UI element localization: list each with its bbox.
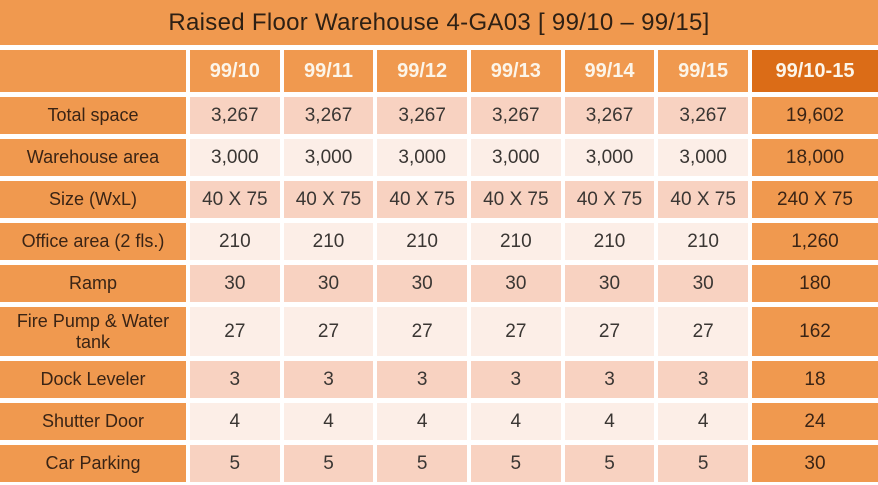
table-cell: 3,267 xyxy=(471,97,561,134)
table-cell: 5 xyxy=(658,445,748,482)
table-cell: 3 xyxy=(565,361,655,398)
row-label: Ramp xyxy=(0,265,186,302)
table-cell: 3 xyxy=(471,361,561,398)
table-cell: 5 xyxy=(284,445,374,482)
warehouse-table-page: Raised Floor Warehouse 4-GA03 [ 99/10 – … xyxy=(0,0,878,485)
row-label: Shutter Door xyxy=(0,403,186,440)
header-col-99-12: 99/12 xyxy=(377,50,467,92)
table-cell: 30 xyxy=(565,265,655,302)
table-cell: 40 X 75 xyxy=(658,181,748,218)
table-cell: 40 X 75 xyxy=(565,181,655,218)
table-cell: 5 xyxy=(190,445,280,482)
table-cell: 40 X 75 xyxy=(284,181,374,218)
row-total-cell: 162 xyxy=(752,307,878,356)
header-col-99-10: 99/10 xyxy=(190,50,280,92)
table-cell: 3 xyxy=(190,361,280,398)
row-total-cell: 18,000 xyxy=(752,139,878,176)
table-cell: 210 xyxy=(190,223,280,260)
header-col-99-13: 99/13 xyxy=(471,50,561,92)
table-cell: 27 xyxy=(190,307,280,356)
row-total-cell: 24 xyxy=(752,403,878,440)
row-label: Warehouse area xyxy=(0,139,186,176)
table-cell: 27 xyxy=(658,307,748,356)
table-cell: 210 xyxy=(658,223,748,260)
row-label: Car Parking xyxy=(0,445,186,482)
row-total-cell: 19,602 xyxy=(752,97,878,134)
table-cell: 4 xyxy=(471,403,561,440)
table-cell: 3,000 xyxy=(284,139,374,176)
table-cell: 4 xyxy=(377,403,467,440)
table-cell: 4 xyxy=(565,403,655,440)
row-total-cell: 18 xyxy=(752,361,878,398)
row-total-cell: 180 xyxy=(752,265,878,302)
table-cell: 3,000 xyxy=(377,139,467,176)
table-cell: 3,000 xyxy=(565,139,655,176)
table-cell: 27 xyxy=(377,307,467,356)
table-title-bar: Raised Floor Warehouse 4-GA03 [ 99/10 – … xyxy=(0,0,878,45)
row-total-cell: 30 xyxy=(752,445,878,482)
table-cell: 3,267 xyxy=(284,97,374,134)
table-cell: 27 xyxy=(565,307,655,356)
table-cell: 210 xyxy=(565,223,655,260)
table-cell: 4 xyxy=(284,403,374,440)
table-cell: 3 xyxy=(377,361,467,398)
header-corner-cell xyxy=(0,50,186,92)
table-cell: 3,267 xyxy=(658,97,748,134)
row-total-cell: 1,260 xyxy=(752,223,878,260)
table-cell: 3 xyxy=(284,361,374,398)
header-col-99-15: 99/15 xyxy=(658,50,748,92)
table-cell: 5 xyxy=(565,445,655,482)
table-cell: 210 xyxy=(284,223,374,260)
table-cell: 40 X 75 xyxy=(471,181,561,218)
row-label: Office area (2 fls.) xyxy=(0,223,186,260)
table-cell: 30 xyxy=(658,265,748,302)
table-cell: 40 X 75 xyxy=(377,181,467,218)
table-cell: 30 xyxy=(377,265,467,302)
row-label: Fire Pump & Water tank xyxy=(0,307,186,356)
table-cell: 3,267 xyxy=(565,97,655,134)
table-cell: 3 xyxy=(658,361,748,398)
row-label: Size (WxL) xyxy=(0,181,186,218)
table-cell: 210 xyxy=(377,223,467,260)
table-cell: 4 xyxy=(658,403,748,440)
table-cell: 27 xyxy=(284,307,374,356)
header-col-99-11: 99/11 xyxy=(284,50,374,92)
table-cell: 5 xyxy=(471,445,561,482)
table-cell: 3,000 xyxy=(471,139,561,176)
header-col-total: 99/10-15 xyxy=(752,50,878,92)
table-cell: 3,267 xyxy=(377,97,467,134)
header-col-99-14: 99/14 xyxy=(565,50,655,92)
table-cell: 30 xyxy=(471,265,561,302)
table-cell: 30 xyxy=(284,265,374,302)
table-cell: 3,267 xyxy=(190,97,280,134)
table-cell: 210 xyxy=(471,223,561,260)
table-cell: 27 xyxy=(471,307,561,356)
warehouse-table: 99/10 99/11 99/12 99/13 99/14 99/15 99/1… xyxy=(0,50,878,482)
row-label: Dock Leveler xyxy=(0,361,186,398)
table-cell: 5 xyxy=(377,445,467,482)
table-cell: 4 xyxy=(190,403,280,440)
table-title: Raised Floor Warehouse 4-GA03 [ 99/10 – … xyxy=(168,9,709,37)
table-cell: 3,000 xyxy=(190,139,280,176)
table-cell: 40 X 75 xyxy=(190,181,280,218)
row-total-cell: 240 X 75 xyxy=(752,181,878,218)
table-cell: 3,000 xyxy=(658,139,748,176)
row-label: Total space xyxy=(0,97,186,134)
table-cell: 30 xyxy=(190,265,280,302)
